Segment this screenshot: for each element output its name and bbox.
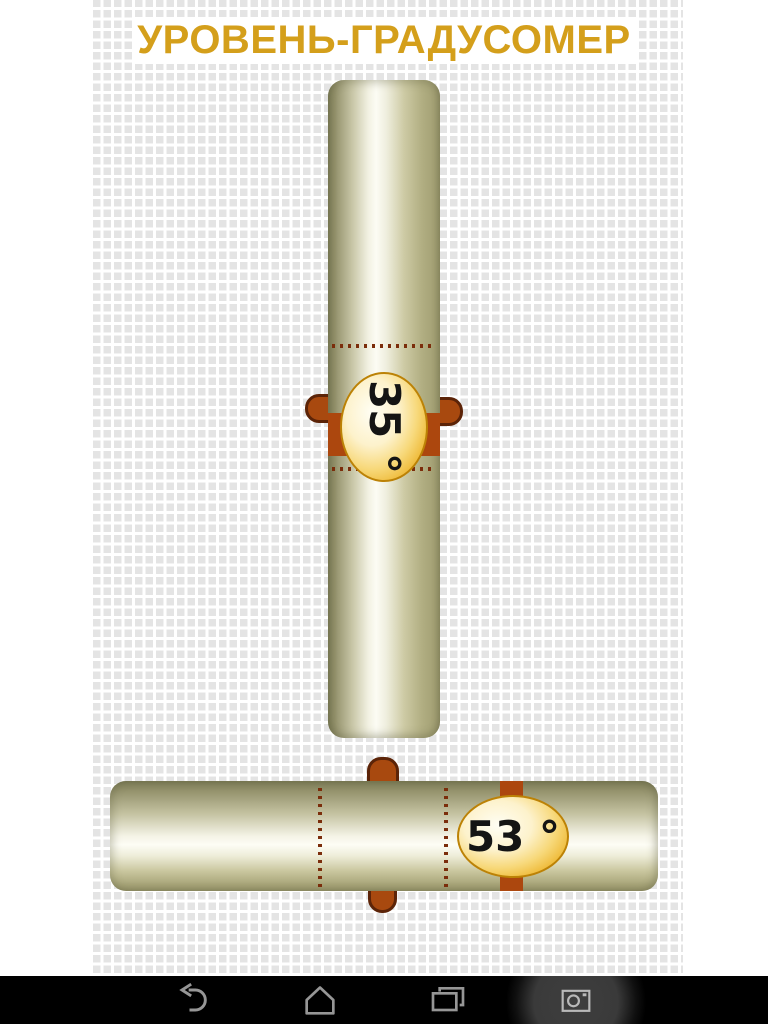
vertical-angle-reading: 35 ° (363, 380, 405, 474)
horizontal-level-center-mark-left (318, 785, 322, 887)
vertical-angle-bubble: 35 ° (340, 372, 428, 482)
home-icon (300, 983, 340, 1017)
page-title: УРОВЕНЬ-ГРАДУСОМЕР (137, 18, 630, 63)
recents-icon (428, 983, 468, 1017)
vertical-level-center-mark-top (332, 344, 436, 348)
horizontal-angle-reading: 53 ° (466, 816, 560, 858)
horizontal-level-tube (110, 781, 658, 891)
title-band: УРОВЕНЬ-ГРАДУСОМЕР (132, 17, 636, 64)
app-screen: УРОВЕНЬ-ГРАДУСОМЕР 35 ° 53 ° (0, 0, 768, 1024)
home-button[interactable] (284, 976, 356, 1024)
camera-icon (556, 982, 596, 1018)
android-navigation-bar (0, 976, 768, 1024)
horizontal-angle-bubble: 53 ° (457, 795, 569, 878)
recents-button[interactable] (412, 976, 484, 1024)
back-button[interactable] (156, 976, 228, 1024)
horizontal-level-center-mark-right (444, 785, 448, 887)
camera-button[interactable] (540, 976, 612, 1024)
back-icon (172, 983, 212, 1017)
